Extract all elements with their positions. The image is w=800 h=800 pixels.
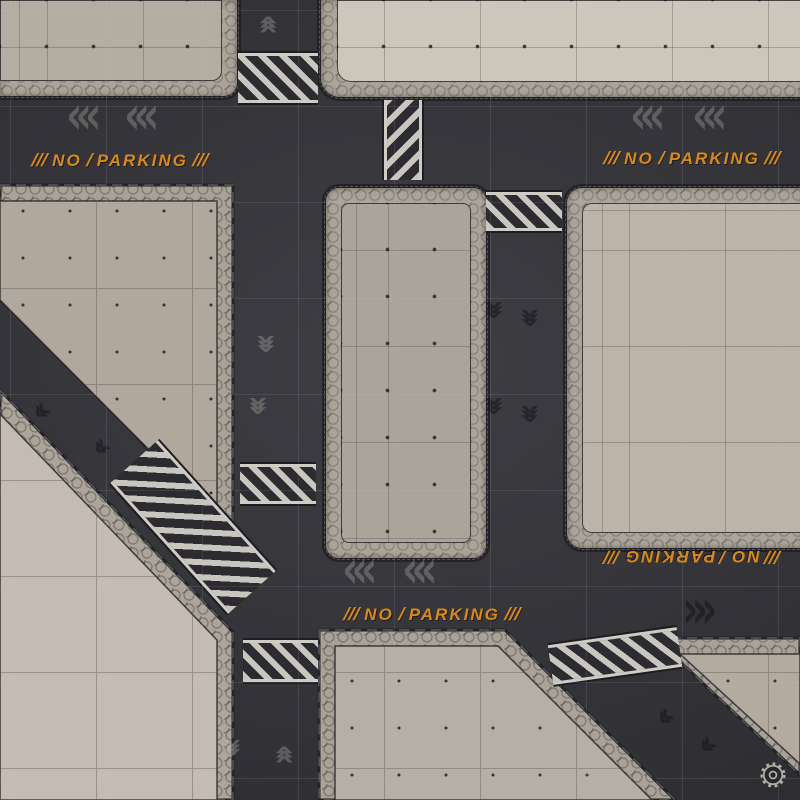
no-parking-marking-south-east-flipped: ///NO/PARKING/// — [602, 546, 782, 567]
crosswalk-north-road — [238, 53, 318, 103]
chevron-left-icon: ‹‹‹ — [692, 94, 720, 137]
no-parking-marking-east: ///NO/PARKING/// — [602, 148, 782, 169]
gear-logo-icon — [760, 762, 786, 788]
crosswalk-east-vertical-road — [486, 192, 562, 231]
chevron-down-icon: ‹‹‹ — [250, 340, 279, 354]
no-parking-marking-west: ///NO/PARKING/// — [30, 150, 210, 171]
hazard-slashes: /// — [341, 604, 363, 625]
chevron-left-icon: ‹‹‹ — [342, 548, 370, 591]
hazard-slashes: /// — [761, 148, 783, 169]
hazard-slashes: /// — [29, 150, 51, 171]
hazard-slashes: /// — [189, 150, 211, 171]
no-parking-marking-south-center: ///NO/PARKING/// — [338, 604, 526, 625]
gaming-mat: ‹‹‹ ‹‹‹ ‹‹‹ ‹‹‹ ‹‹‹ ‹‹‹ ‹‹‹ ‹‹‹ ‹‹‹ ‹‹‹ … — [0, 0, 800, 800]
hazard-slashes: /// — [601, 148, 623, 169]
hazard-slashes: /// — [501, 604, 523, 625]
crosswalk-west-vertical-road — [240, 464, 316, 504]
chevron-right-icon: ››› — [682, 588, 710, 631]
pad-east-large — [564, 185, 800, 551]
chevron-left-icon: ‹‹‹ — [630, 94, 658, 137]
chevron-left-icon: ‹‹‹ — [66, 94, 94, 137]
chevron-down-icon: ‹‹‹ — [216, 744, 245, 758]
pad-center-tall — [323, 185, 489, 561]
pad-north-west — [0, 0, 240, 99]
chevron-up-icon: ‹‹‹ — [270, 744, 299, 758]
chevron-left-icon: ‹‹‹ — [124, 94, 152, 137]
hazard-slashes: /// — [761, 546, 783, 567]
chevron-down-icon: ‹‹‹ — [242, 402, 271, 416]
chevron-up-icon: ‹‹‹ — [254, 14, 283, 28]
hazard-slashes: /// — [601, 546, 623, 567]
crosswalk-upper-main-road — [384, 100, 422, 180]
chevron-down-icon: ‹‹‹ — [514, 314, 543, 328]
chevron-left-icon: ‹‹‹ — [402, 548, 430, 591]
crosswalk-south-road — [243, 640, 318, 682]
pad-north-wide — [318, 0, 800, 100]
chevron-down-icon: ‹‹‹ — [514, 410, 543, 424]
chevron-down-icon: ‹‹‹ — [478, 402, 507, 416]
chevron-down-icon: ‹‹‹ — [478, 306, 507, 320]
